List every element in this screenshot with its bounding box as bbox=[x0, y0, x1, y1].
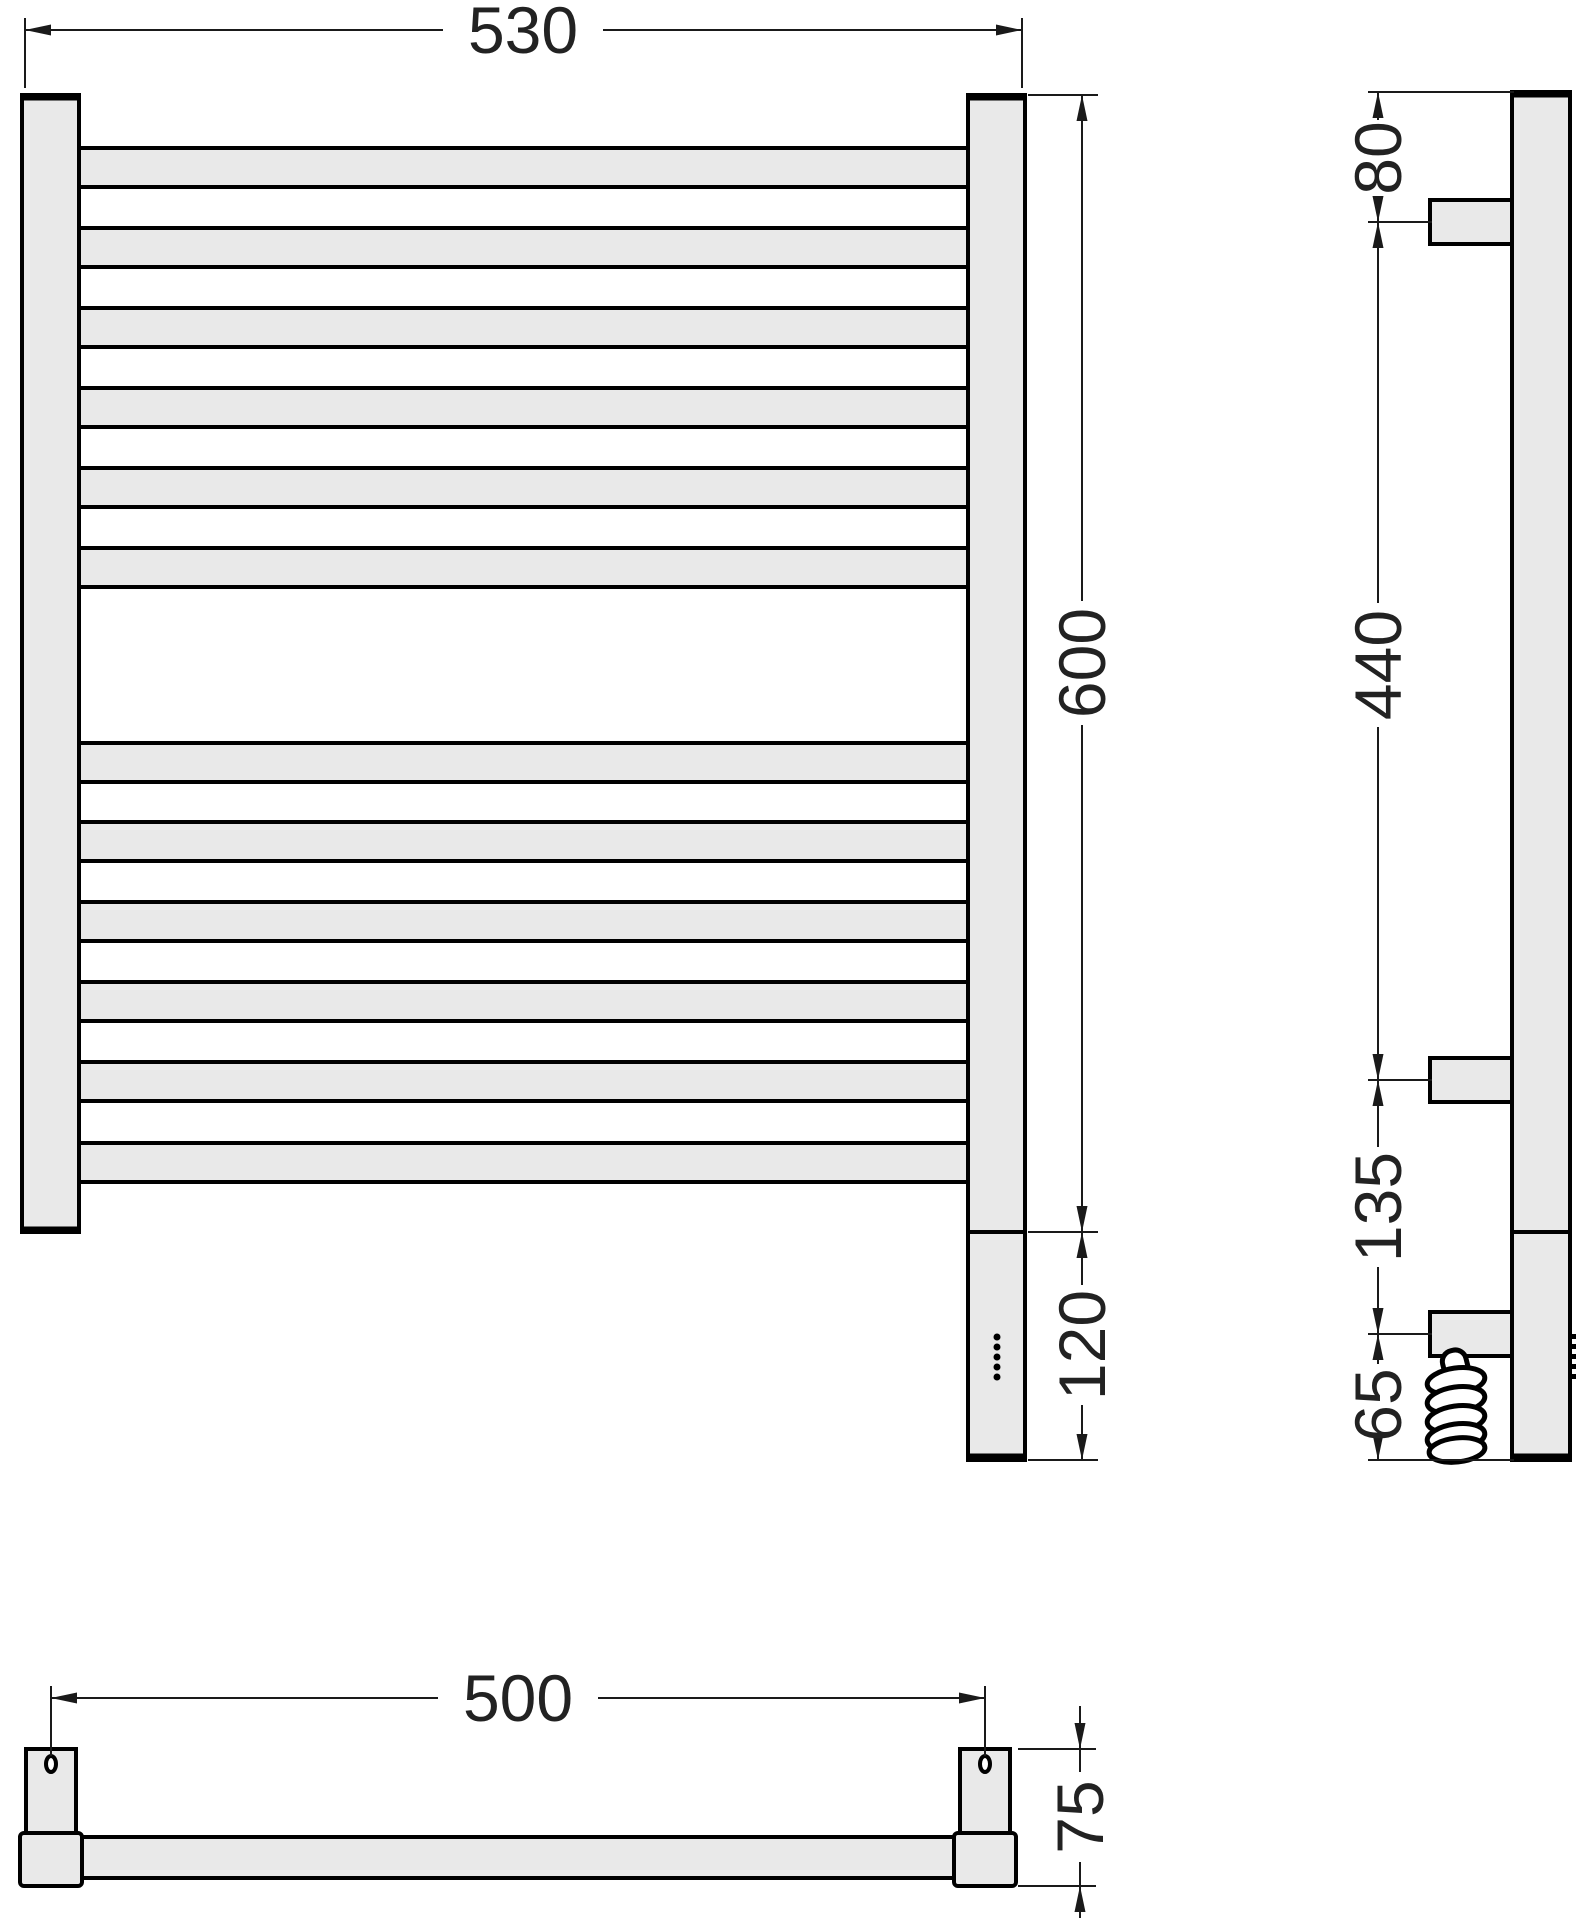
front-view: 530 600 120 bbox=[20, 0, 1119, 1460]
dimension-arrow bbox=[1075, 1723, 1086, 1749]
dimension-arrow bbox=[1077, 1206, 1088, 1232]
right-mount-foot bbox=[954, 1833, 1016, 1886]
indicator-dot bbox=[994, 1344, 1001, 1351]
rung-bar bbox=[77, 1143, 970, 1182]
dimension-arrow bbox=[1077, 95, 1088, 121]
dimension-arrow bbox=[1373, 1054, 1384, 1080]
rung-bar bbox=[77, 468, 970, 507]
rung-bar bbox=[77, 308, 970, 347]
dimension-arrow bbox=[1373, 1080, 1384, 1106]
dimension-arrow bbox=[1373, 196, 1384, 222]
dimension-arrow bbox=[1077, 1232, 1088, 1258]
dimension-arrow bbox=[1373, 222, 1384, 248]
left-mount-foot bbox=[20, 1833, 82, 1886]
bottom-view: 500 75 bbox=[20, 1661, 1117, 1918]
rung-bar bbox=[77, 1062, 970, 1101]
technical-drawing-page: 530 600 120 bbox=[0, 0, 1593, 1920]
button-tick bbox=[1568, 1364, 1576, 1369]
wall-bracket-bottom bbox=[1430, 1312, 1513, 1356]
dimension-label-side-top-offset: 80 bbox=[1341, 121, 1415, 194]
rung-bar bbox=[77, 148, 970, 187]
button-tick bbox=[1568, 1374, 1576, 1379]
rung-bar bbox=[77, 548, 970, 587]
dimension-label-side-lower-offset: 135 bbox=[1341, 1152, 1415, 1262]
dimension-heater-section: 120 bbox=[1028, 1232, 1119, 1460]
dimension-label-bracket-spacing: 440 bbox=[1341, 610, 1415, 720]
rung-bar bbox=[77, 743, 970, 782]
dimension-arrow bbox=[1373, 1334, 1384, 1360]
dimension-arrow bbox=[1075, 1886, 1086, 1912]
dimension-arrow bbox=[25, 25, 51, 36]
side-rail-profile bbox=[1512, 92, 1570, 1460]
right-rail bbox=[968, 95, 1025, 1232]
wall-bracket-middle bbox=[1430, 1058, 1513, 1102]
wall-bracket-top bbox=[1430, 200, 1513, 244]
bottom-rail-profile bbox=[76, 1837, 960, 1878]
dimension-mount-spacing: 500 bbox=[51, 1661, 985, 1756]
dimension-label-front-width: 530 bbox=[468, 0, 578, 67]
dimension-arrow bbox=[959, 1693, 985, 1704]
button-tick bbox=[1568, 1354, 1576, 1359]
dimension-front-width: 530 bbox=[25, 0, 1022, 88]
dimension-bracket-spacing: 440 bbox=[1341, 222, 1432, 1080]
button-tick bbox=[1568, 1344, 1576, 1349]
dimension-label-front-height: 600 bbox=[1045, 608, 1119, 718]
rung-bar bbox=[77, 902, 970, 941]
button-tick bbox=[1568, 1334, 1576, 1339]
dimension-label-side-bottom-offset: 65 bbox=[1341, 1368, 1415, 1441]
rung-bar bbox=[77, 822, 970, 861]
dimension-side-lower-offset: 135 bbox=[1341, 1080, 1432, 1334]
dimension-arrow bbox=[1373, 92, 1384, 118]
rung-bar bbox=[77, 228, 970, 267]
dimension-arrow bbox=[1077, 1434, 1088, 1460]
power-cable-coil bbox=[1425, 1348, 1486, 1465]
indicator-dot bbox=[994, 1374, 1001, 1381]
indicator-dot bbox=[994, 1354, 1001, 1361]
right-mount-hole bbox=[980, 1756, 990, 1772]
dimension-arrow bbox=[51, 1693, 77, 1704]
indicator-dot bbox=[994, 1334, 1001, 1341]
dimension-front-height: 600 bbox=[1028, 95, 1119, 1232]
left-mount-hole bbox=[46, 1756, 56, 1772]
rung-bar bbox=[77, 982, 970, 1021]
dimension-arrow bbox=[1373, 1308, 1384, 1334]
dimension-label-wall-depth: 75 bbox=[1043, 1780, 1117, 1853]
left-rail bbox=[22, 95, 79, 1232]
dimension-wall-depth: 75 bbox=[1018, 1706, 1117, 1918]
indicator-dot bbox=[994, 1364, 1001, 1371]
rung-bars bbox=[77, 148, 970, 1182]
side-view: 80 440 135 65 bbox=[1341, 92, 1576, 1465]
technical-drawing-canvas: 530 600 120 bbox=[0, 0, 1593, 1920]
dimension-arrow bbox=[996, 25, 1022, 36]
rung-bar bbox=[77, 388, 970, 427]
dimension-label-mount-spacing: 500 bbox=[463, 1661, 573, 1735]
dimension-label-heater-section: 120 bbox=[1045, 1290, 1119, 1400]
